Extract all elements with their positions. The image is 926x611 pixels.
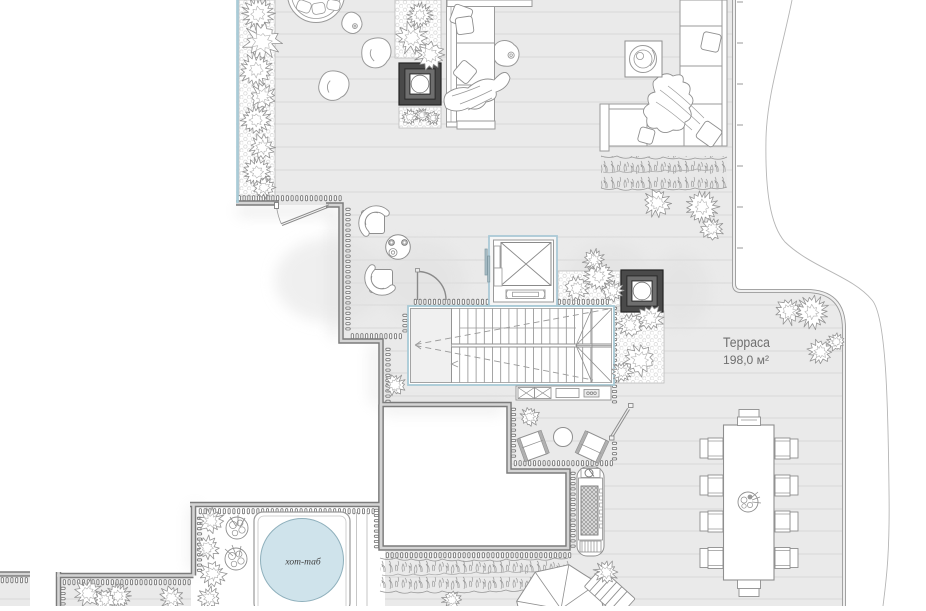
svg-text:198,0 м²: 198,0 м² xyxy=(723,353,769,367)
svg-text:Терраса: Терраса xyxy=(723,335,770,350)
svg-text:хот-таб: хот-таб xyxy=(284,557,321,568)
